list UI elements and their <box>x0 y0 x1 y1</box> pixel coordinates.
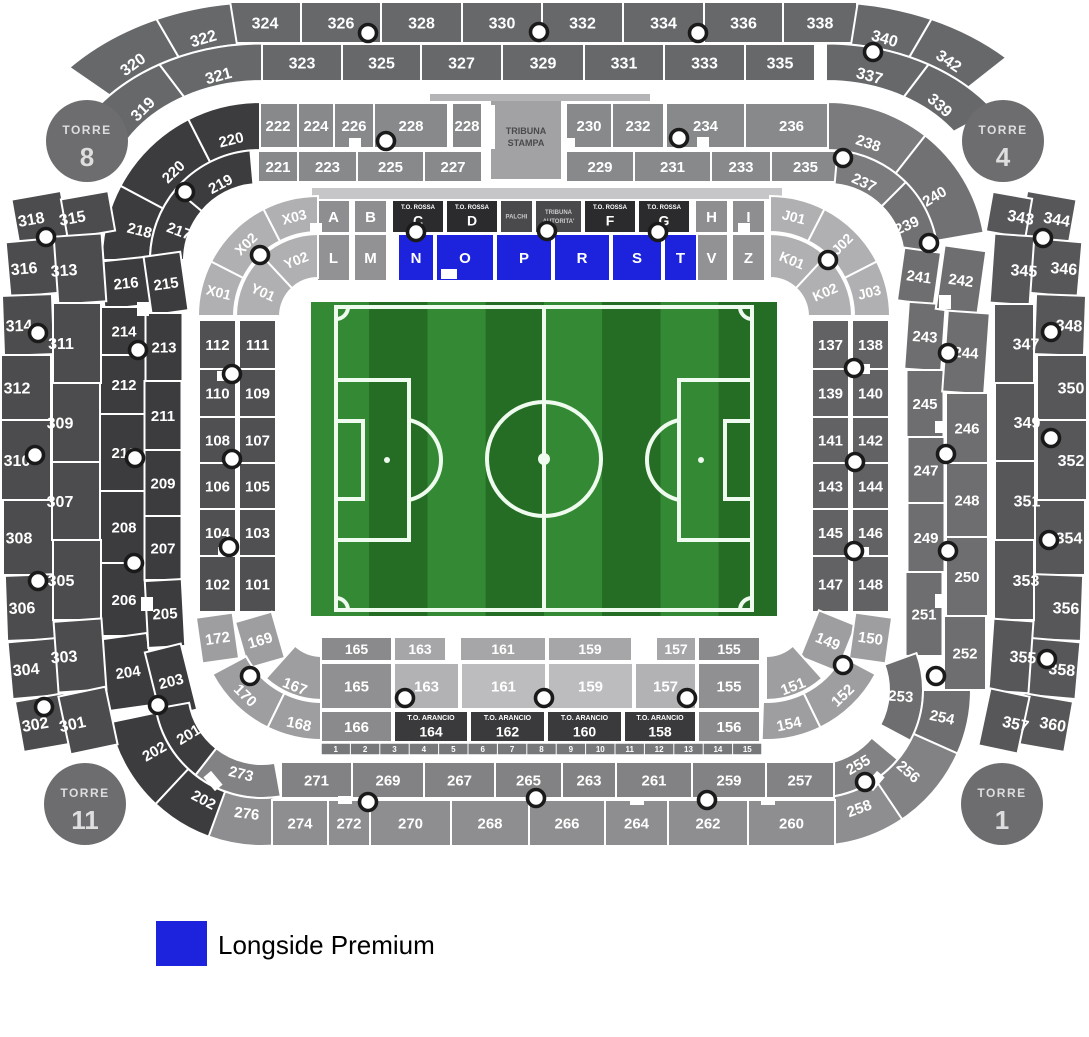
svg-text:6: 6 <box>480 745 485 754</box>
svg-text:T.O. ROSSA: T.O. ROSSA <box>401 205 436 211</box>
svg-text:214: 214 <box>111 323 137 340</box>
svg-text:305: 305 <box>48 573 75 590</box>
svg-text:T.O. ROSSA: T.O. ROSSA <box>593 205 628 211</box>
svg-text:109: 109 <box>245 385 270 402</box>
svg-text:311: 311 <box>48 336 74 353</box>
svg-text:166: 166 <box>344 719 369 736</box>
svg-text:257: 257 <box>787 772 812 789</box>
svg-text:346: 346 <box>1050 260 1078 279</box>
svg-text:161: 161 <box>491 641 515 657</box>
svg-text:332: 332 <box>569 15 596 32</box>
svg-text:141: 141 <box>818 432 843 449</box>
svg-text:11: 11 <box>71 805 99 835</box>
svg-text:112: 112 <box>205 337 229 354</box>
svg-text:Z: Z <box>744 250 753 267</box>
svg-text:304: 304 <box>12 661 40 680</box>
svg-text:147: 147 <box>818 576 843 593</box>
svg-text:226: 226 <box>341 118 366 135</box>
svg-text:229: 229 <box>587 159 612 176</box>
svg-text:15: 15 <box>743 745 752 754</box>
svg-text:T.O. ROSSA: T.O. ROSSA <box>455 205 490 211</box>
svg-text:221: 221 <box>265 159 290 176</box>
svg-text:270: 270 <box>398 815 423 832</box>
svg-text:260: 260 <box>779 815 804 832</box>
svg-text:246: 246 <box>954 420 979 437</box>
svg-text:TRIBUNA: TRIBUNA <box>506 126 547 136</box>
svg-text:231: 231 <box>660 159 685 176</box>
svg-text:157: 157 <box>653 678 678 695</box>
svg-text:243: 243 <box>912 328 938 347</box>
svg-text:228: 228 <box>454 118 479 135</box>
svg-text:158: 158 <box>648 724 672 740</box>
svg-text:333: 333 <box>691 55 718 72</box>
svg-text:14: 14 <box>713 745 722 754</box>
svg-text:157: 157 <box>664 641 688 657</box>
svg-text:303: 303 <box>50 648 78 667</box>
svg-text:228: 228 <box>398 118 423 135</box>
svg-text:F: F <box>606 213 615 229</box>
svg-text:338: 338 <box>807 15 834 32</box>
svg-text:10: 10 <box>596 745 605 754</box>
svg-text:207: 207 <box>150 540 175 557</box>
svg-text:108: 108 <box>205 432 230 449</box>
svg-text:P: P <box>519 250 529 267</box>
svg-text:252: 252 <box>952 645 977 662</box>
svg-text:1: 1 <box>333 745 338 754</box>
svg-text:223: 223 <box>315 159 340 176</box>
svg-text:334: 334 <box>650 15 677 32</box>
svg-text:329: 329 <box>530 55 557 72</box>
svg-text:A: A <box>328 209 339 226</box>
svg-text:352: 352 <box>1058 453 1085 470</box>
svg-text:350: 350 <box>1058 380 1085 397</box>
svg-text:M: M <box>364 250 377 267</box>
svg-text:164: 164 <box>419 724 443 740</box>
svg-text:155: 155 <box>717 641 741 657</box>
svg-text:271: 271 <box>304 772 329 789</box>
svg-text:107: 107 <box>245 432 270 449</box>
svg-text:308: 308 <box>6 530 33 547</box>
svg-text:9: 9 <box>569 745 574 754</box>
svg-text:312: 312 <box>4 380 31 397</box>
svg-text:347: 347 <box>1013 336 1040 353</box>
svg-text:R: R <box>577 250 588 267</box>
svg-text:242: 242 <box>947 271 974 291</box>
svg-text:233: 233 <box>728 159 753 176</box>
svg-text:H: H <box>706 209 717 226</box>
svg-text:143: 143 <box>818 478 843 495</box>
svg-text:165: 165 <box>344 678 369 695</box>
svg-text:160: 160 <box>573 724 597 740</box>
svg-text:227: 227 <box>440 159 465 176</box>
svg-text:S: S <box>632 250 642 267</box>
svg-text:356: 356 <box>1052 600 1079 618</box>
svg-text:248: 248 <box>954 492 979 509</box>
svg-text:345: 345 <box>1010 262 1038 281</box>
svg-text:TRIBUNA: TRIBUNA <box>545 210 573 216</box>
svg-text:T.O. ROSSA: T.O. ROSSA <box>647 205 682 211</box>
svg-text:N: N <box>411 250 422 267</box>
svg-text:235: 235 <box>793 159 818 176</box>
svg-text:105: 105 <box>245 478 270 495</box>
svg-text:353: 353 <box>1013 573 1040 590</box>
svg-text:232: 232 <box>625 118 650 135</box>
svg-text:102: 102 <box>205 576 230 593</box>
svg-text:224: 224 <box>303 118 329 135</box>
svg-text:172: 172 <box>204 629 231 649</box>
svg-text:306: 306 <box>8 600 35 618</box>
svg-text:269: 269 <box>375 772 400 789</box>
svg-text:V: V <box>706 250 716 267</box>
svg-text:159: 159 <box>578 678 603 695</box>
svg-text:TORRE: TORRE <box>977 786 1026 800</box>
svg-text:313: 313 <box>50 262 78 281</box>
svg-text:230: 230 <box>576 118 601 135</box>
svg-text:146: 146 <box>858 525 883 542</box>
svg-text:324: 324 <box>252 15 279 32</box>
svg-text:268: 268 <box>477 815 502 832</box>
svg-text:L: L <box>329 250 338 267</box>
svg-text:216: 216 <box>113 274 140 294</box>
svg-text:TORRE: TORRE <box>978 123 1027 137</box>
svg-text:265: 265 <box>516 772 541 789</box>
svg-text:163: 163 <box>414 678 439 695</box>
svg-text:5: 5 <box>451 745 456 754</box>
svg-text:140: 140 <box>858 385 883 402</box>
svg-text:101: 101 <box>245 576 270 593</box>
svg-text:264: 264 <box>624 815 650 832</box>
svg-text:266: 266 <box>554 815 579 832</box>
svg-text:111: 111 <box>246 337 269 354</box>
svg-text:STAMPA: STAMPA <box>508 138 545 148</box>
svg-text:B: B <box>365 209 376 226</box>
svg-text:309: 309 <box>47 415 74 432</box>
svg-text:349: 349 <box>1014 415 1041 432</box>
svg-text:156: 156 <box>716 719 741 736</box>
svg-text:O: O <box>459 250 471 267</box>
svg-text:12: 12 <box>655 745 664 754</box>
svg-text:165: 165 <box>345 641 369 657</box>
svg-text:267: 267 <box>447 772 472 789</box>
svg-text:137: 137 <box>818 337 843 354</box>
svg-text:1: 1 <box>995 805 1009 835</box>
svg-text:208: 208 <box>111 519 136 536</box>
svg-text:225: 225 <box>378 159 403 176</box>
svg-text:139: 139 <box>818 385 843 402</box>
svg-text:110: 110 <box>205 385 229 402</box>
svg-text:247: 247 <box>913 462 938 479</box>
svg-text:215: 215 <box>153 274 180 294</box>
svg-text:209: 209 <box>150 475 175 492</box>
svg-text:8: 8 <box>80 142 94 172</box>
svg-text:8: 8 <box>539 745 544 754</box>
svg-text:236: 236 <box>779 118 804 135</box>
svg-text:250: 250 <box>954 569 979 586</box>
svg-text:212: 212 <box>111 377 136 394</box>
svg-text:328: 328 <box>408 15 435 32</box>
svg-text:138: 138 <box>858 337 883 354</box>
svg-text:335: 335 <box>767 55 794 72</box>
svg-text:2: 2 <box>363 745 368 754</box>
svg-text:259: 259 <box>716 772 741 789</box>
svg-text:103: 103 <box>245 525 270 542</box>
svg-text:4: 4 <box>422 745 427 754</box>
svg-text:T.O. ARANCIO: T.O. ARANCIO <box>407 715 455 722</box>
svg-text:145: 145 <box>818 525 843 542</box>
svg-text:354: 354 <box>1056 530 1083 547</box>
svg-text:251: 251 <box>911 606 936 623</box>
svg-text:Longside Premium: Longside Premium <box>218 930 435 960</box>
svg-text:T.O. ARANCIO: T.O. ARANCIO <box>636 715 684 722</box>
svg-text:234: 234 <box>693 118 719 135</box>
svg-text:11: 11 <box>625 745 634 754</box>
svg-text:161: 161 <box>491 678 516 695</box>
svg-text:106: 106 <box>205 478 230 495</box>
svg-text:263: 263 <box>576 772 601 789</box>
svg-text:211: 211 <box>151 408 175 425</box>
svg-text:PALCHI: PALCHI <box>506 215 528 221</box>
svg-text:323: 323 <box>289 55 316 72</box>
svg-text:276: 276 <box>233 804 260 824</box>
svg-text:262: 262 <box>695 815 720 832</box>
svg-text:307: 307 <box>47 494 74 511</box>
svg-text:TORRE: TORRE <box>60 786 109 800</box>
svg-text:245: 245 <box>912 396 937 413</box>
svg-text:272: 272 <box>336 815 361 832</box>
svg-text:330: 330 <box>489 15 516 32</box>
svg-text:249: 249 <box>913 530 938 547</box>
svg-text:253: 253 <box>888 688 914 707</box>
svg-text:13: 13 <box>684 745 693 754</box>
svg-text:T.O. ARANCIO: T.O. ARANCIO <box>561 715 609 722</box>
svg-text:316: 316 <box>10 260 38 279</box>
svg-text:327: 327 <box>448 55 475 72</box>
svg-text:3: 3 <box>392 745 397 754</box>
svg-text:351: 351 <box>1014 493 1041 510</box>
svg-text:D: D <box>467 213 477 229</box>
svg-text:159: 159 <box>578 641 602 657</box>
svg-text:325: 325 <box>368 55 395 72</box>
svg-text:205: 205 <box>152 605 178 623</box>
svg-text:331: 331 <box>611 55 638 72</box>
svg-text:150: 150 <box>857 629 884 649</box>
svg-text:355: 355 <box>1009 649 1037 668</box>
svg-text:155: 155 <box>716 678 741 695</box>
svg-text:148: 148 <box>858 576 883 593</box>
svg-text:213: 213 <box>151 339 176 356</box>
svg-text:162: 162 <box>496 724 520 740</box>
svg-text:142: 142 <box>858 432 883 449</box>
svg-text:206: 206 <box>111 592 136 609</box>
svg-text:222: 222 <box>265 118 290 135</box>
svg-text:274: 274 <box>287 815 313 832</box>
svg-text:T.O. ARANCIO: T.O. ARANCIO <box>484 715 532 722</box>
svg-text:T: T <box>676 250 685 267</box>
svg-text:4: 4 <box>996 142 1011 172</box>
svg-text:7: 7 <box>510 745 515 754</box>
svg-text:144: 144 <box>858 478 884 495</box>
svg-text:204: 204 <box>115 663 143 683</box>
svg-text:241: 241 <box>905 267 932 287</box>
svg-text:TORRE: TORRE <box>62 123 111 137</box>
svg-text:326: 326 <box>328 15 355 32</box>
svg-text:163: 163 <box>408 641 432 657</box>
svg-text:336: 336 <box>730 15 757 32</box>
svg-text:261: 261 <box>641 772 666 789</box>
